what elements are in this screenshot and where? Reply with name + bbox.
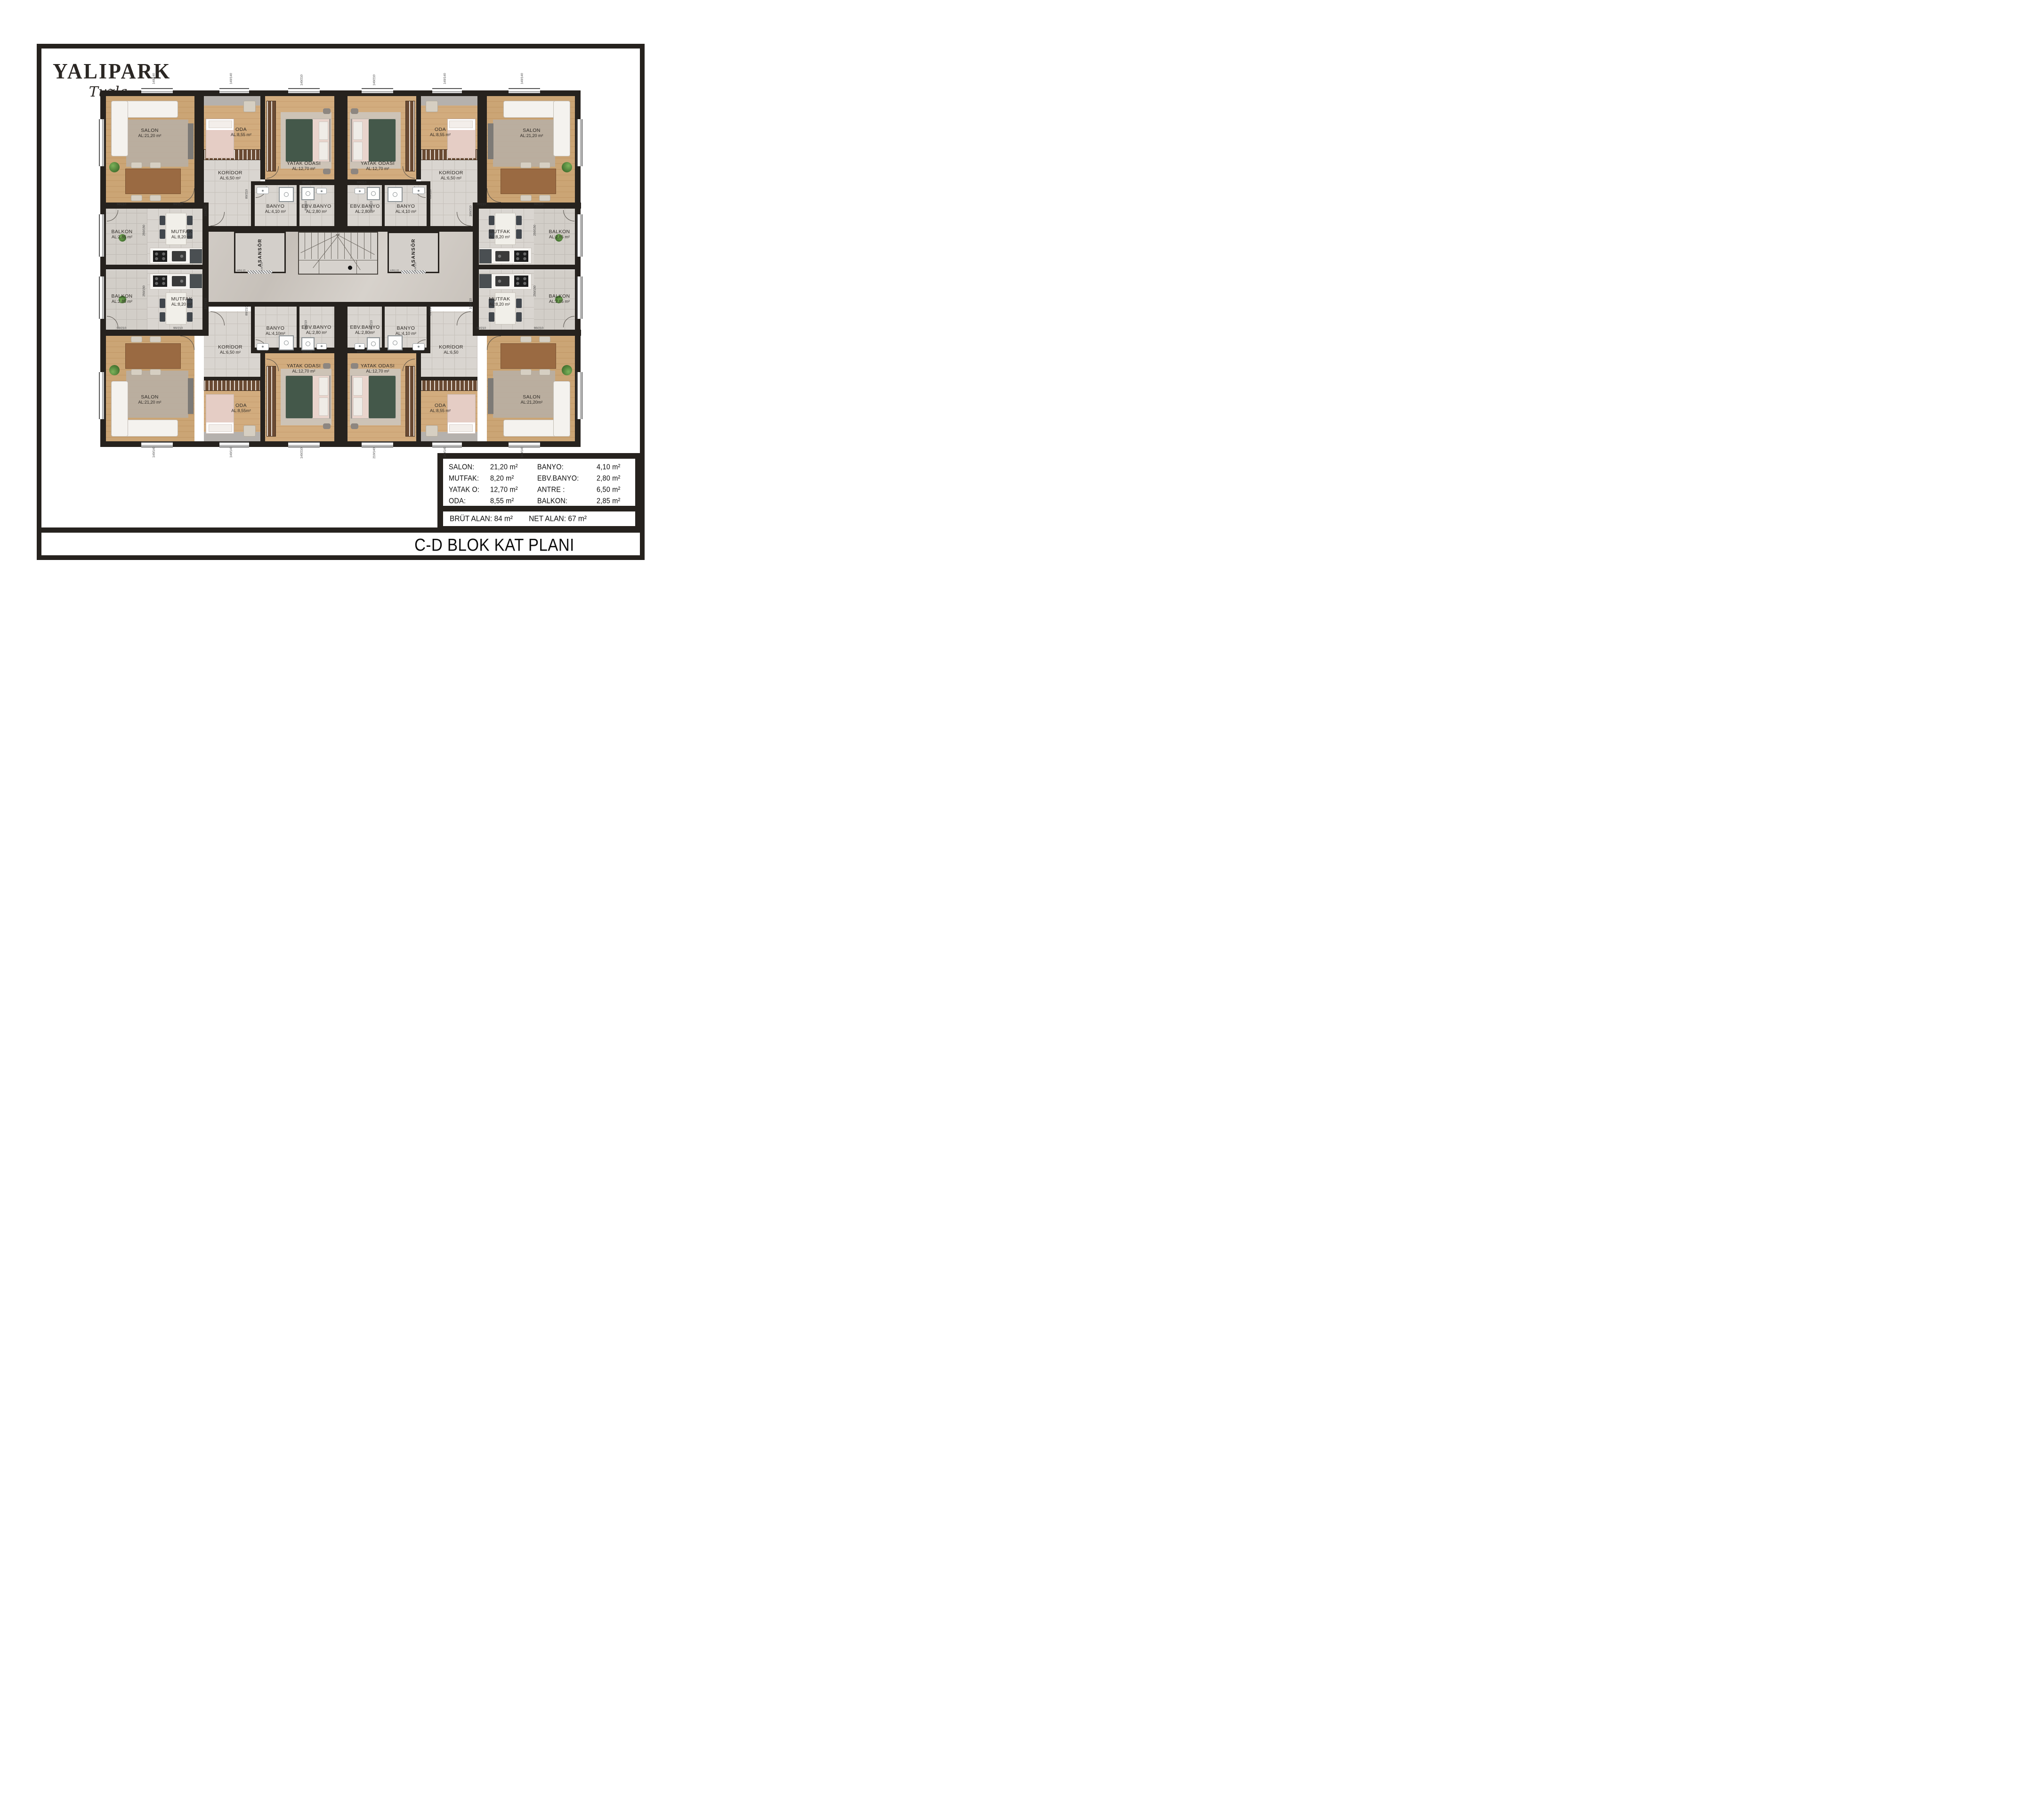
wall xyxy=(204,377,260,380)
room-label-line: AL:6,50 xyxy=(439,350,463,355)
furniture-chair xyxy=(150,369,161,375)
furniture-chair xyxy=(520,195,532,201)
elevator-shaft: ASANSÖR xyxy=(388,232,439,273)
furniture-sinkW xyxy=(316,188,327,194)
furniture-tv xyxy=(188,378,194,414)
furniture-chairO xyxy=(243,101,256,112)
wall xyxy=(416,90,421,179)
furniture-detail xyxy=(371,191,376,196)
dimension-label: 1,00 2,10 xyxy=(414,262,417,271)
window-glass-line xyxy=(509,91,540,92)
dimension-label: 140/210 xyxy=(300,447,304,459)
elevator-shaft: ASANSÖR xyxy=(234,232,286,273)
furniture-chair xyxy=(539,369,550,375)
room-label-line: AL:2,80m² xyxy=(350,209,380,214)
furniture-nstand xyxy=(323,108,331,114)
room-label-balkon-tl: BALKONAL:2,85 m² xyxy=(112,229,133,239)
window xyxy=(99,214,105,257)
room-label-line: AL:12,70 m² xyxy=(361,369,395,373)
room-label-mutfak-bl: MUTFAKAL:8,20 m² xyxy=(171,296,193,307)
room-label-balkon-tr: BALKONAL:2,85 m² xyxy=(549,229,570,239)
furniture-chairD xyxy=(516,229,522,239)
wall xyxy=(260,90,265,179)
dimension-label: 80/210 xyxy=(305,320,308,330)
dimension-label: 80/210 xyxy=(305,201,308,211)
sheet: YALIPARK Tuzla ASANSÖRASANSÖR140/140140/… xyxy=(0,0,681,606)
furniture-detail xyxy=(190,274,202,288)
furniture-counter xyxy=(479,248,532,264)
furniture-chair xyxy=(520,369,532,375)
legend-cell: YATAK O: xyxy=(449,486,490,494)
dimension-label: 100/210 xyxy=(469,205,473,217)
room-label-line: AL:12,70 m² xyxy=(361,166,395,171)
dimension-label: 210/140 xyxy=(373,447,376,459)
wall xyxy=(477,90,487,209)
furniture-chair xyxy=(520,336,532,342)
dimension-label: 90/210 xyxy=(173,327,183,330)
stair-tread xyxy=(364,233,364,259)
furniture-shower xyxy=(301,337,315,350)
furniture-table xyxy=(125,343,181,369)
furniture-chairD xyxy=(160,216,165,225)
furniture-detail xyxy=(353,377,363,396)
window xyxy=(288,442,320,447)
furniture-bedD xyxy=(351,119,396,162)
window-glass-line xyxy=(102,214,103,257)
elevator-door-hatch xyxy=(248,270,272,274)
room-label-line: AL:6,50 m² xyxy=(218,176,242,180)
dimension-label: 90/210 xyxy=(117,203,126,206)
furniture-detail xyxy=(449,121,473,128)
furniture-detail xyxy=(153,251,167,262)
window xyxy=(362,88,393,94)
dimension-label: 90/210 xyxy=(357,351,366,354)
furniture-detail xyxy=(262,346,264,348)
furniture-nstand xyxy=(351,423,358,429)
room-label-line: BANYO xyxy=(396,203,416,209)
furniture-detail xyxy=(353,142,363,161)
window xyxy=(577,372,582,419)
wall xyxy=(416,353,421,441)
dimension-label: 250/150 xyxy=(533,225,537,236)
window-glass-line xyxy=(219,91,249,92)
wall xyxy=(334,307,347,447)
dimension-label: 250/150 xyxy=(533,285,537,297)
furniture-sofaV xyxy=(553,381,570,437)
room-label-line: AL:8,20 m² xyxy=(489,235,510,239)
dimension-label: 90/210 xyxy=(173,203,183,206)
room-label-line: YATAK ODASI xyxy=(287,363,321,369)
dimension-label: KIRIŞ (Z) xyxy=(390,269,399,272)
window-glass-line xyxy=(432,91,462,92)
room-label-line: AL:8,55 m² xyxy=(231,132,251,137)
legend-cell: 8,20 m² xyxy=(490,474,537,482)
furniture-chair xyxy=(539,336,550,342)
furniture-chair xyxy=(520,162,532,168)
furniture-sinkW xyxy=(412,343,425,350)
furniture-bedS xyxy=(447,394,476,434)
furniture-plant xyxy=(562,162,572,172)
window-glass-line xyxy=(102,119,103,166)
furniture-bedS xyxy=(447,119,476,158)
furniture-detail xyxy=(172,251,186,261)
room-label-line: AL:2,80m² xyxy=(350,330,380,335)
wall xyxy=(202,203,209,336)
room-label-salon-bl: SALONAL:21,20 m² xyxy=(138,394,161,405)
furniture-chair xyxy=(539,162,550,168)
room-label-line: MUTFAK xyxy=(489,229,510,235)
room-wardrobe-bl xyxy=(204,380,260,391)
room-label-line: AL:2,85 m² xyxy=(112,299,133,304)
furniture-detail xyxy=(262,190,264,192)
dimension-label: 140/140 xyxy=(230,446,233,458)
furniture-bedS xyxy=(206,394,234,434)
legend-cell: 12,70 m² xyxy=(490,486,537,494)
legend-cell: ODA: xyxy=(449,497,490,505)
furniture-nstand xyxy=(351,169,358,174)
window xyxy=(432,88,462,94)
furniture-counter xyxy=(150,248,202,264)
dimension-label: 100/210 xyxy=(204,298,208,309)
room-label-balkon-br: BALKONAL:2,85 m² xyxy=(549,293,570,304)
wall xyxy=(477,203,581,209)
room-label-yatak-tl: YATAK ODASIAL:12,70 m² xyxy=(287,161,321,171)
room-label-line: YATAK ODASI xyxy=(287,161,321,166)
furniture-chair xyxy=(131,195,142,201)
room-label-yatak-tr: YATAK ODASIAL:12,70 m² xyxy=(361,161,395,171)
dimension-label: 80/210 xyxy=(370,201,373,211)
window-glass-line xyxy=(580,372,581,419)
furniture-wrdV xyxy=(267,101,276,171)
room-label-line: BALKON xyxy=(112,293,133,299)
furniture-chairD xyxy=(516,299,522,308)
room-label-mutfak-br: MUTFAKAL:8,20 m² xyxy=(489,296,510,307)
room-label-line: SALON xyxy=(138,128,161,133)
furniture-chair xyxy=(150,162,161,168)
room-label-salon-tl: SALONAL:21,20 m² xyxy=(138,128,161,138)
furniture-detail xyxy=(206,130,234,158)
furniture-chairD xyxy=(160,229,165,239)
room-label-ebv-banyo-br: EBV.BANYOAL:2,80m² xyxy=(350,324,380,335)
furniture-sinkW xyxy=(355,343,365,349)
room-label-line: EBV.BANYO xyxy=(350,203,380,209)
wall xyxy=(479,265,579,269)
window-glass-line xyxy=(432,445,462,446)
room-label-line: KORİDOR xyxy=(439,170,463,176)
stair-tread xyxy=(305,233,305,259)
furniture-detail xyxy=(495,251,509,261)
room-label-ebv-banyo-tr: EBV.BANYOAL:2,80m² xyxy=(350,203,380,214)
furniture-detail xyxy=(319,142,328,161)
furniture-detail xyxy=(321,190,323,192)
dimension-label: 90/210 xyxy=(117,327,126,330)
dimension-label: 80/210 xyxy=(429,189,432,199)
furniture-counter xyxy=(479,274,532,290)
furniture-chairO xyxy=(243,425,256,437)
room-label-mutfak-tr: MUTFAKAL:8,20 m² xyxy=(489,229,510,239)
wall xyxy=(382,185,385,226)
furniture-table xyxy=(125,169,181,194)
furniture-chairD xyxy=(160,299,165,308)
furniture-sinkW xyxy=(355,188,365,194)
room-label-line: AL:21,20 m² xyxy=(520,133,543,138)
room-label-line: BALKON xyxy=(549,229,570,235)
room-label-line: AL:4,10 m² xyxy=(396,209,416,214)
furniture-chairO xyxy=(426,425,438,437)
window-glass-line xyxy=(288,445,320,446)
furniture-detail xyxy=(209,424,233,432)
dimension-label: 1,00 2,10 xyxy=(261,262,263,271)
room-label-koridor-tr: KORİDORAL:6,50 m² xyxy=(439,170,463,180)
furniture-chairD xyxy=(187,312,193,322)
legend-room-areas: SALON:21,20 m²BANYO:4,10 m²MUTFAK:8,20 m… xyxy=(443,459,635,506)
furniture-tv xyxy=(188,123,194,159)
furniture-chairD xyxy=(516,312,522,322)
room-label-line: ODA xyxy=(231,127,251,132)
title-divider xyxy=(41,527,640,533)
room-label-line: AL:8,55 m² xyxy=(430,408,451,413)
furniture-detail xyxy=(359,346,361,348)
dimension-label: 90/210 xyxy=(477,203,486,206)
room-label-line: KORİDOR xyxy=(218,344,242,350)
room-label-line: AL:12,70 m² xyxy=(287,369,321,373)
dimension-label: 90/210 xyxy=(302,181,312,185)
dimension-label: 90/210 xyxy=(477,327,486,330)
room-label-line: AL:6,50 m² xyxy=(218,350,242,355)
room-label-line: SALON xyxy=(521,394,543,400)
room-label-line: AL:21,20 m² xyxy=(138,400,161,405)
legend-cell: 2,85 m² xyxy=(597,497,636,505)
dimension-label: 90/210 xyxy=(534,327,543,330)
stair-tread xyxy=(356,260,357,274)
furniture-sinkW xyxy=(316,343,327,349)
furniture-detail xyxy=(393,341,397,345)
window xyxy=(577,119,582,166)
legend-cell: EBV.BANYO: xyxy=(537,474,597,482)
room-label-line: MUTFAK xyxy=(171,229,193,235)
furniture-detail xyxy=(353,397,363,416)
room-label-line: ODA xyxy=(430,403,451,408)
room-label-line: AL:2,80 m² xyxy=(301,330,331,335)
window xyxy=(432,442,462,447)
furniture-shower xyxy=(301,187,315,200)
room-label-banyo-tl: BANYOAL:4,10 m² xyxy=(265,203,286,214)
furniture-wrdV xyxy=(405,366,415,437)
room-label-line: KORİDOR xyxy=(439,344,463,350)
furniture-detail xyxy=(209,121,233,128)
furniture-detail xyxy=(321,346,323,348)
furniture-wrdV xyxy=(405,101,415,171)
furniture-wrdV xyxy=(267,366,276,437)
furniture-rug xyxy=(493,120,555,167)
furniture-detail xyxy=(353,122,363,140)
wall xyxy=(260,353,265,441)
furniture-chairD xyxy=(187,216,193,225)
furniture-detail xyxy=(306,191,310,196)
furniture-detail xyxy=(286,119,313,162)
furniture-nstand xyxy=(351,363,358,369)
furniture-chair xyxy=(131,336,142,342)
furniture-counter xyxy=(150,274,202,290)
room-label-line: YATAK ODASI xyxy=(361,363,395,369)
furniture-shower xyxy=(388,335,403,350)
furniture-table xyxy=(501,343,556,369)
room-label-line: BANYO xyxy=(265,203,286,209)
furniture-bedD xyxy=(285,375,331,419)
room-label-yatak-bl: YATAK ODASIAL:12,70 m² xyxy=(287,363,321,373)
furniture-detail xyxy=(479,249,492,263)
room-label-line: EBV.BANYO xyxy=(350,324,380,330)
furniture-bedS xyxy=(206,119,234,158)
room-label-line: AL:8,20 m² xyxy=(489,302,510,307)
window xyxy=(219,88,249,94)
furniture-detail xyxy=(449,424,473,432)
furniture-plant xyxy=(109,162,120,172)
window xyxy=(577,276,582,319)
drawing-title: C-D BLOK KAT PLANI xyxy=(351,535,638,555)
furniture-detail xyxy=(284,341,289,345)
furniture-detail xyxy=(369,119,396,162)
window-glass-line xyxy=(288,91,320,92)
furniture-detail xyxy=(393,192,397,197)
wall xyxy=(477,330,581,336)
dimension-label: KIRIŞ (Z) xyxy=(237,269,246,272)
dimension-label: 80/210 xyxy=(370,320,373,330)
furniture-chair xyxy=(150,336,161,342)
dimension-label: 140/140 xyxy=(521,446,524,458)
furniture-tv xyxy=(488,123,493,159)
wall xyxy=(204,226,477,232)
window-glass-line xyxy=(580,214,581,257)
wall xyxy=(194,90,204,209)
legend-cell: SALON: xyxy=(449,463,490,471)
furniture-nstand xyxy=(323,363,331,369)
staircase xyxy=(298,232,378,275)
dimension-label: 140/140 xyxy=(444,446,447,458)
furniture-nstand xyxy=(323,423,331,429)
room-label-salon-br: SALONAL:21,20m² xyxy=(521,394,543,405)
furniture-detail xyxy=(286,376,313,418)
furniture-chairD xyxy=(489,216,494,225)
legend-cell: 4,10 m² xyxy=(597,463,636,471)
dimension-label: 80/210 xyxy=(429,306,432,316)
dimension-label: 90/210 xyxy=(357,181,366,185)
furniture-detail xyxy=(206,395,234,422)
room-label-line: AL:8,55 m² xyxy=(430,132,451,137)
dimension-label: 90/210 xyxy=(302,351,312,354)
room-label-line: AL:4,10 m² xyxy=(265,209,286,214)
dimension-label: 140/210 xyxy=(373,74,376,86)
furniture-shower xyxy=(388,187,403,202)
room-label-banyo-bl: BANYOAL:4,10m² xyxy=(266,325,285,336)
furniture-shower xyxy=(279,335,294,350)
dimension-label: 100/210 xyxy=(469,298,473,309)
furniture-bedD xyxy=(285,119,331,162)
room-label-koridor-br: KORİDORAL:6,50 xyxy=(439,344,463,355)
wall xyxy=(103,265,202,269)
room-label-line: AL:6,50 m² xyxy=(439,176,463,180)
dimension-label: 100/210 xyxy=(204,205,208,217)
window xyxy=(288,88,320,94)
furniture-detail xyxy=(319,122,328,140)
stair-tread xyxy=(319,260,319,274)
wall xyxy=(421,377,477,380)
room-label-line: AL:4,10m² xyxy=(266,331,285,336)
wall xyxy=(427,181,430,226)
room-label-line: MUTFAK xyxy=(489,296,510,302)
dimension-label: 90/210 xyxy=(534,203,543,206)
furniture-detail xyxy=(319,377,328,396)
furniture-chair xyxy=(539,195,550,201)
dimension-label: 140/140 xyxy=(230,73,233,84)
furniture-detail xyxy=(448,130,475,158)
furniture-sofaV xyxy=(111,381,128,437)
dimension-label: 250/150 xyxy=(143,225,146,236)
furniture-detail xyxy=(479,274,492,288)
stair-tread xyxy=(324,233,325,259)
stair-tread xyxy=(311,233,312,259)
furniture-detail xyxy=(448,395,475,422)
room-label-koridor-tl: KORİDORAL:6,50 m² xyxy=(218,170,242,180)
furniture-detail xyxy=(190,249,202,263)
room-label-oda-tr: ODAAL:8,55 m² xyxy=(430,127,451,137)
room-label-mutfak-tl: MUTFAKAL:8,20 m² xyxy=(171,229,193,239)
furniture-chair xyxy=(150,195,161,201)
furniture-chairD xyxy=(160,312,165,322)
room-label-line: MUTFAK xyxy=(171,296,193,302)
wall xyxy=(100,330,204,336)
furniture-sinkW xyxy=(412,187,425,194)
furniture-detail xyxy=(369,376,396,418)
dimension-label: 80/210 xyxy=(245,189,249,199)
room-label-oda-tl: ODAAL:8,55 m² xyxy=(231,127,251,137)
room-label-line: SALON xyxy=(520,128,543,133)
wall xyxy=(251,307,255,349)
wall xyxy=(334,90,347,226)
wall xyxy=(473,203,479,336)
stair-tread xyxy=(371,233,371,259)
room-label-line: BANYO xyxy=(396,325,416,331)
legend-cell: 2,80 m² xyxy=(597,474,636,482)
legend-cell: BALKON: xyxy=(537,497,597,505)
stair-tread xyxy=(318,233,318,259)
furniture-bedD xyxy=(351,375,396,419)
furniture-shower xyxy=(279,187,294,202)
room-label-balkon-bl: BALKONAL:2,85 m² xyxy=(112,293,133,304)
furniture-chair xyxy=(131,369,142,375)
stair-tread xyxy=(331,233,331,259)
legend-cell: ANTRE : xyxy=(537,486,597,494)
furniture-nstand xyxy=(351,108,358,114)
window-glass-line xyxy=(362,445,393,446)
furniture-chairD xyxy=(489,312,494,322)
room-label-line: AL:8,55m² xyxy=(231,408,251,413)
window-glass-line xyxy=(219,445,249,446)
room-label-line: ODA xyxy=(430,127,451,132)
stair-marker-dot xyxy=(348,266,352,270)
legend-cell: MUTFAK: xyxy=(449,474,490,482)
room-wardrobe-br xyxy=(421,380,477,391)
furniture-detail xyxy=(371,341,376,346)
room-label-line: AL:8,20 m² xyxy=(171,235,193,239)
window-glass-line xyxy=(141,445,173,446)
room-label-line: AL:12,70 m² xyxy=(287,166,321,171)
dimension-label: 250/150 xyxy=(143,285,146,297)
furniture-shower xyxy=(367,337,380,350)
window xyxy=(362,442,393,447)
window xyxy=(99,119,105,166)
furniture-tv xyxy=(488,378,493,414)
